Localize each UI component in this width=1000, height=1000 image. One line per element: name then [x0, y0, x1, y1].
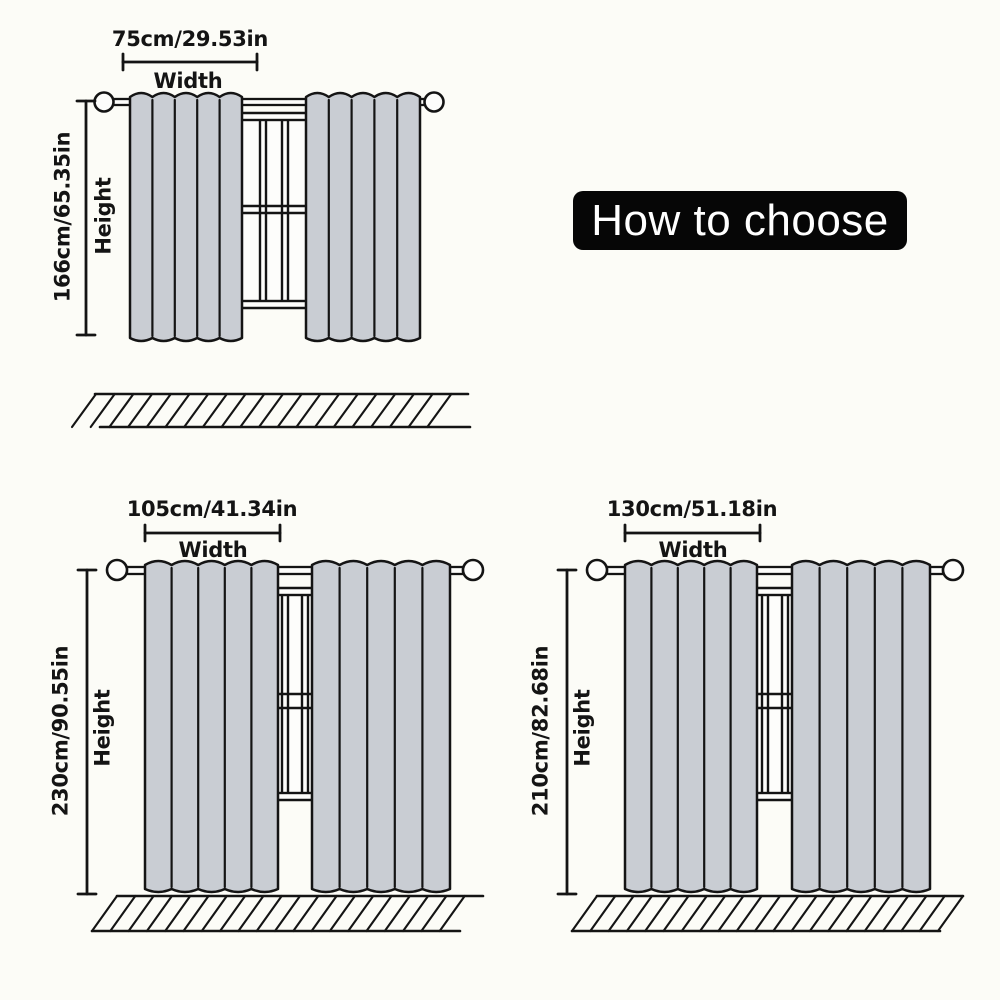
floor-hatch-line	[353, 394, 377, 427]
floor-hatch-line	[147, 394, 171, 427]
rod-finial-right	[463, 560, 483, 580]
banner-label: How to choose	[591, 196, 889, 246]
floor-hatch-line	[72, 394, 96, 427]
height-label: 210cm/82.68in	[528, 646, 552, 817]
floor-hatch-line	[203, 394, 227, 427]
curtain-panel-right	[792, 561, 930, 892]
rod-finial-left	[107, 560, 127, 580]
curtain-panel-left	[625, 561, 757, 892]
height-dimension: 210cm/82.68inHeight	[528, 570, 594, 894]
width-label: 75cm/29.53in	[112, 27, 268, 51]
width-label: 130cm/51.18in	[607, 497, 778, 521]
width-word: Width	[659, 538, 728, 562]
curtain-fabric	[625, 561, 757, 892]
diagram-105cm: 105cm/41.34inWidth230cm/90.55inHeight	[48, 497, 483, 931]
floor-hatch-line	[128, 394, 152, 427]
floor-hatch-line	[390, 394, 414, 427]
rod-finial-left	[587, 560, 607, 580]
floor-hatch-line	[166, 394, 190, 427]
floor-hatch	[72, 394, 470, 427]
width-dimension: 130cm/51.18inWidth	[607, 497, 778, 562]
floor-hatch-line	[259, 394, 283, 427]
diagram-75cm: 75cm/29.53inWidth166cm/65.35inHeight	[50, 27, 470, 427]
width-label: 105cm/41.34in	[127, 497, 298, 521]
floor-hatch-line	[371, 394, 395, 427]
how-to-choose-banner: How to choose	[573, 191, 907, 250]
width-dimension: 75cm/29.53inWidth	[112, 27, 268, 93]
floor-hatch-line	[427, 394, 451, 427]
height-word: Height	[90, 689, 114, 766]
height-word: Height	[570, 689, 594, 766]
height-dimension: 230cm/90.55inHeight	[48, 570, 114, 894]
curtain-panel-right	[312, 561, 450, 892]
floor-hatch-line	[296, 394, 320, 427]
floor-hatch	[572, 896, 963, 931]
rod-finial-left	[95, 93, 114, 112]
rod-finial-right	[943, 560, 963, 580]
height-label: 230cm/90.55in	[48, 646, 72, 817]
height-word: Height	[91, 177, 115, 254]
curtain-fabric	[130, 93, 242, 341]
floor-hatch-line	[91, 394, 115, 427]
floor-hatch	[92, 896, 483, 931]
curtain-panel-right	[306, 93, 420, 341]
floor-hatch-line	[334, 394, 358, 427]
curtain-size-guide: 75cm/29.53inWidth166cm/65.35inHeight105c…	[0, 0, 1000, 1000]
height-dimension: 166cm/65.35inHeight	[50, 101, 115, 335]
curtain-panel-left	[145, 561, 278, 892]
floor-hatch-line	[409, 394, 433, 427]
floor-hatch-line	[184, 394, 208, 427]
curtain-panel-left	[130, 93, 242, 341]
floor-hatch-line	[315, 394, 339, 427]
floor-hatch-line	[278, 394, 302, 427]
curtain-fabric	[312, 561, 450, 892]
width-word: Width	[154, 69, 223, 93]
size-diagrams-canvas: 75cm/29.53inWidth166cm/65.35inHeight105c…	[0, 0, 1000, 1000]
width-word: Width	[179, 538, 248, 562]
rod-finial-right	[425, 93, 444, 112]
height-label: 166cm/65.35in	[50, 132, 74, 303]
curtain-fabric	[792, 561, 930, 892]
curtain-fabric	[145, 561, 278, 892]
width-dimension: 105cm/41.34inWidth	[127, 497, 298, 562]
curtain-fabric	[306, 93, 420, 341]
diagram-130cm: 130cm/51.18inWidth210cm/82.68inHeight	[528, 497, 963, 931]
floor-hatch-line	[222, 394, 246, 427]
floor-hatch-line	[109, 394, 133, 427]
floor-hatch-line	[240, 394, 264, 427]
